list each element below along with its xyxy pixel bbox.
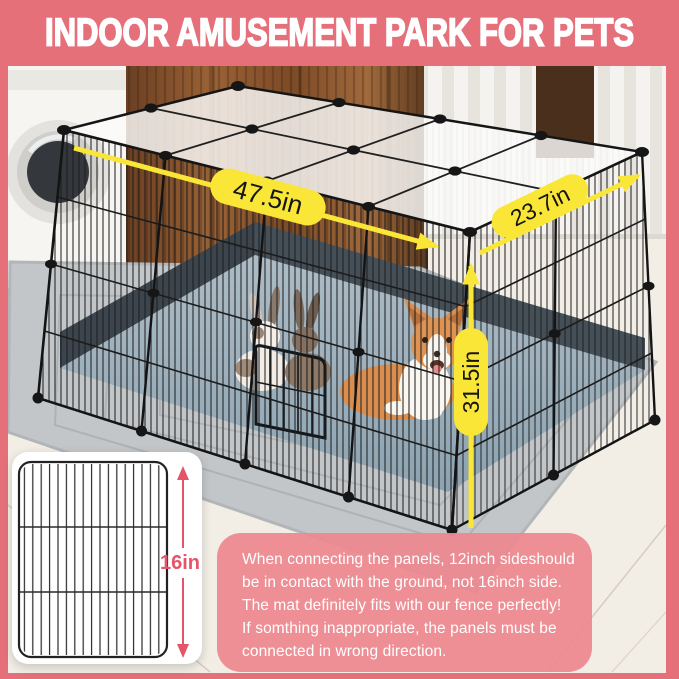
- note-line: be in contact with the ground, not 16inc…: [242, 571, 582, 594]
- header-banner: INDOOR AMUSEMENT PARK FOR PETS: [0, 0, 679, 66]
- panel-height-label: 16in: [160, 552, 200, 574]
- note-box: When connecting the panels, 12inch sides…: [217, 533, 592, 672]
- note-line: When connecting the panels, 12inch sides…: [242, 548, 582, 571]
- product-image: INDOOR AMUSEMENT PARK FOR PETS: [0, 0, 679, 679]
- note-line: If somthing inappropriate, the panels mu…: [242, 617, 582, 640]
- note-line: connected in wrong direction.: [242, 640, 582, 663]
- height-label: 31.5in: [458, 351, 484, 414]
- panel-dimension-card: 16in: [12, 452, 202, 664]
- page-title: INDOOR AMUSEMENT PARK FOR PETS: [45, 11, 634, 56]
- panel-diagram: 16in: [12, 452, 202, 664]
- note-line: The mat definitely fits with our fence p…: [242, 594, 582, 617]
